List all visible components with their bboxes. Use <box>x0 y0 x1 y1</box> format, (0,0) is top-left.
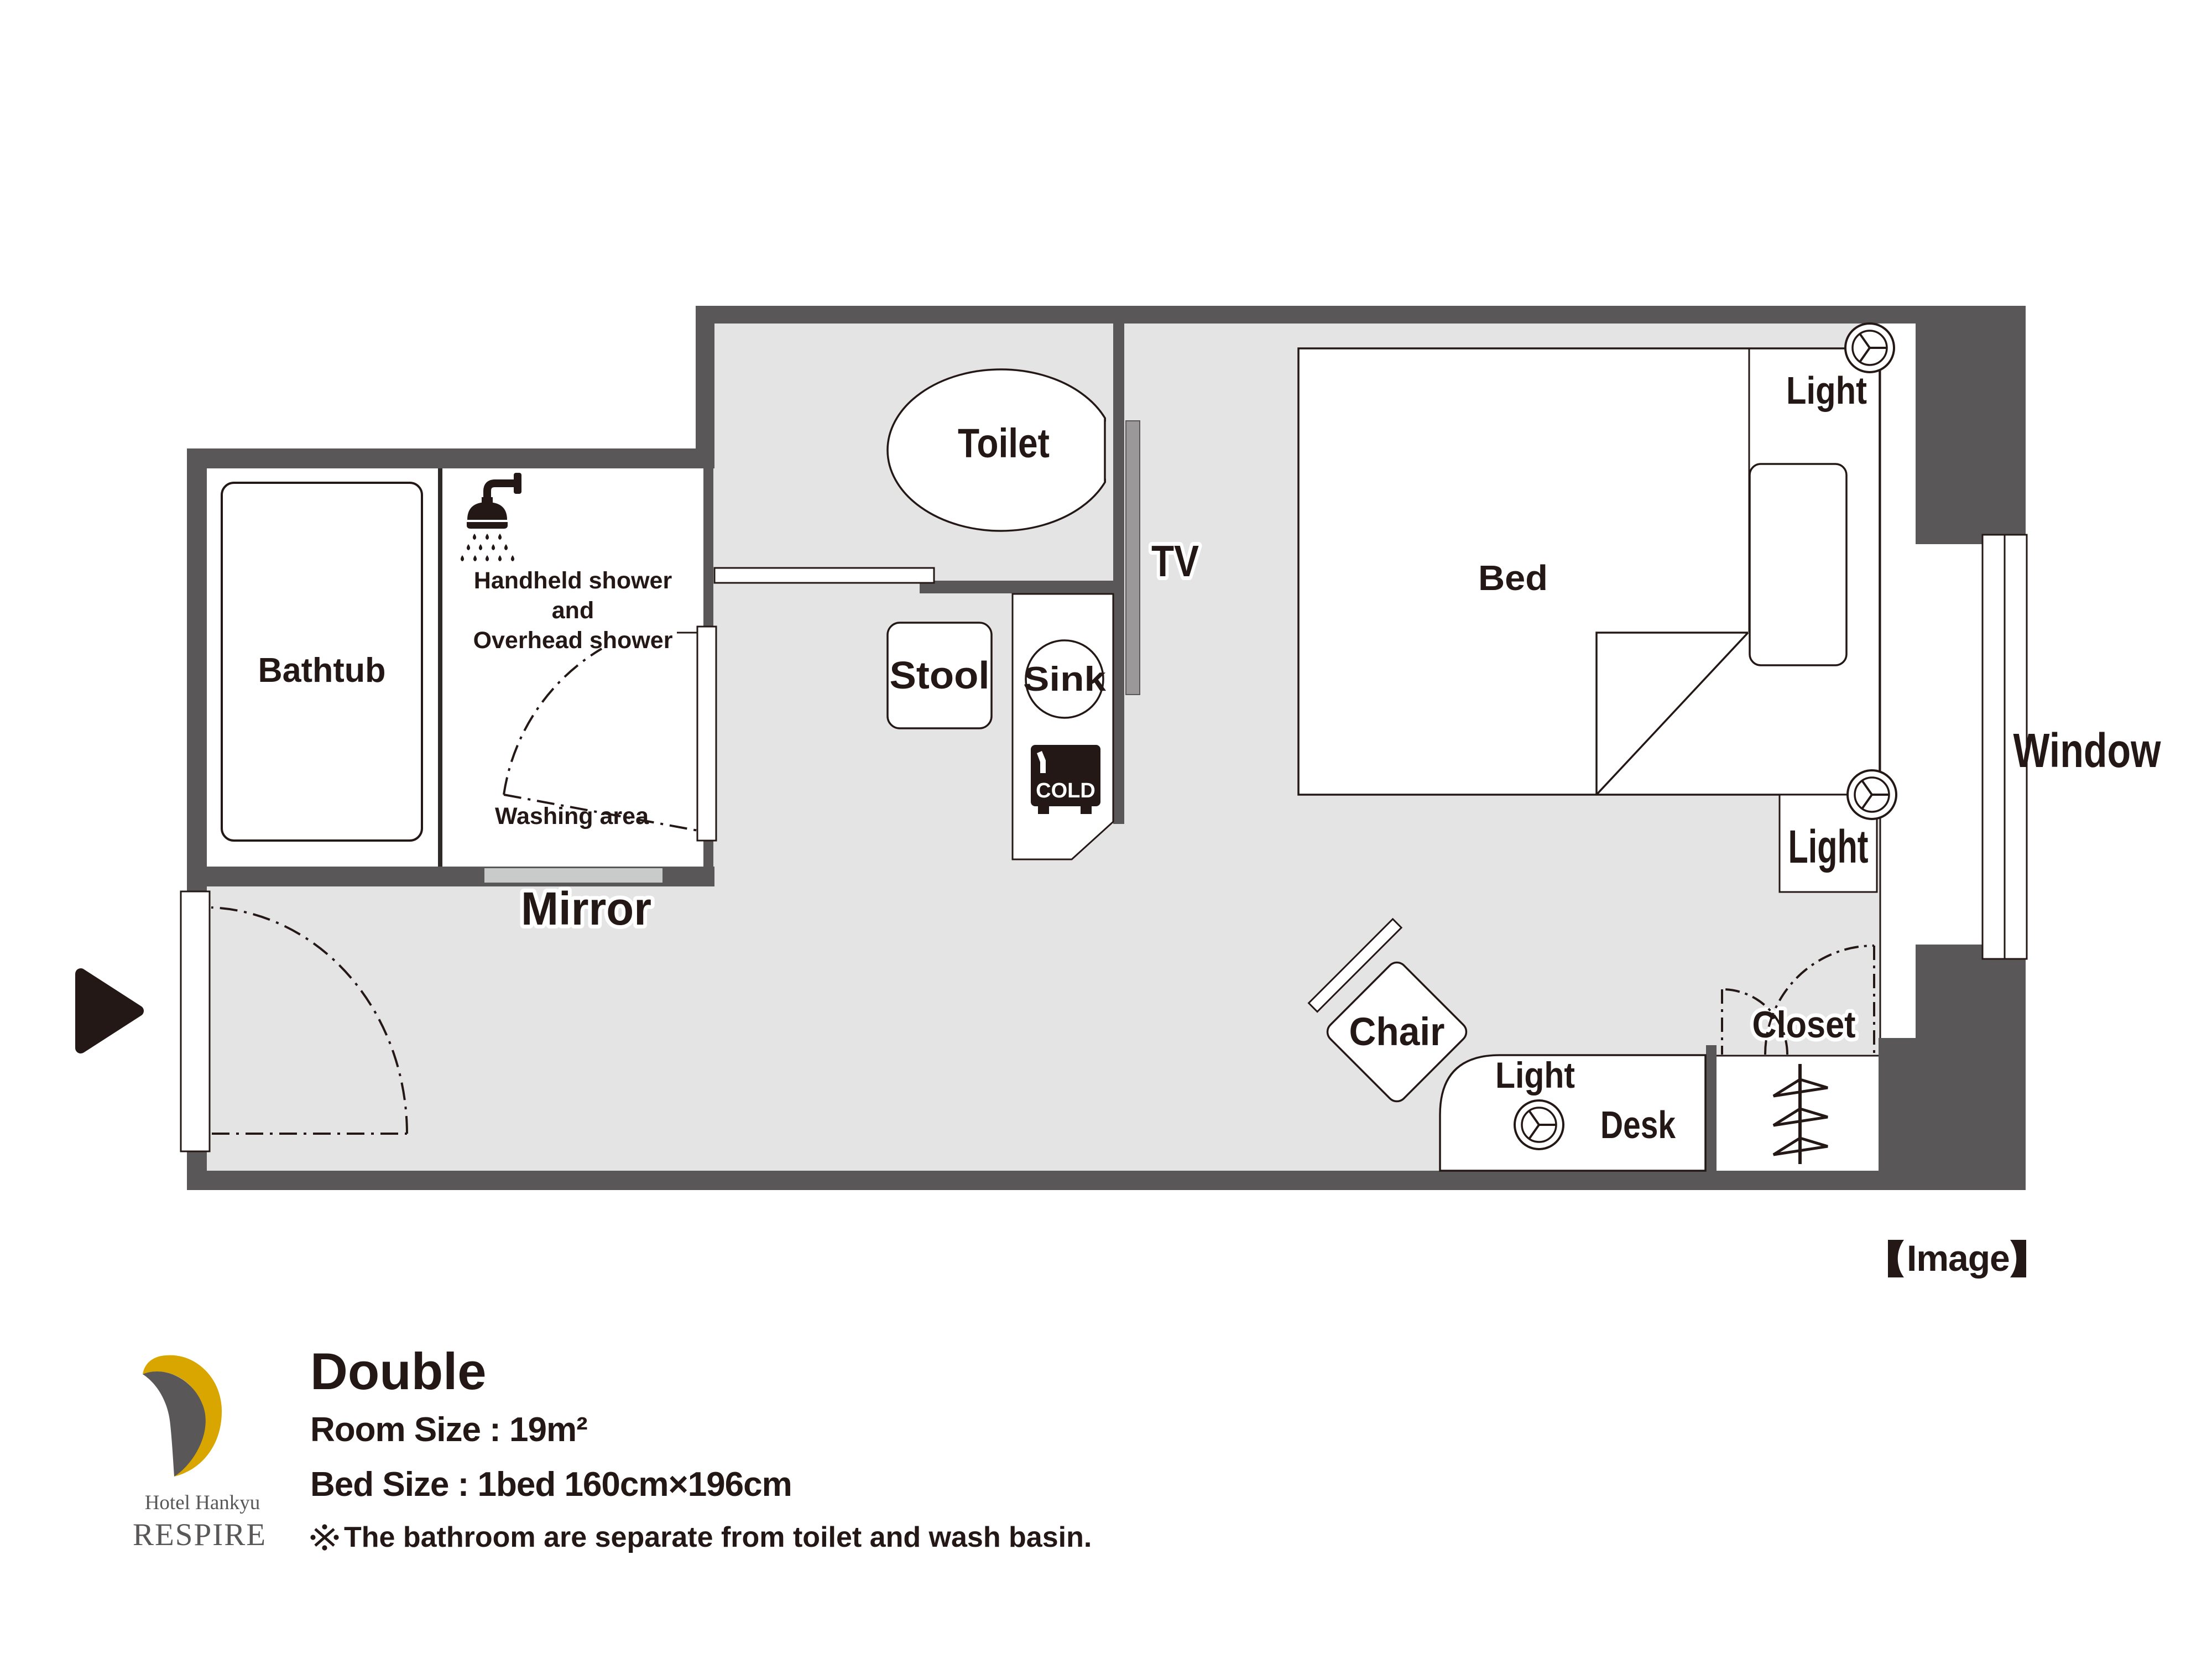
svg-text:Handheld shower: Handheld shower <box>474 567 672 594</box>
svg-text:Stool: Stool <box>890 654 990 697</box>
svg-text:Bed Size : 1bed 160cm×196cm: Bed Size : 1bed 160cm×196cm <box>310 1465 792 1504</box>
svg-text:Light: Light <box>1495 1055 1575 1095</box>
svg-text:Toilet: Toilet <box>958 420 1050 466</box>
svg-text:Sink: Sink <box>1023 660 1107 698</box>
svg-text:Light: Light <box>1788 821 1869 873</box>
svg-text:Hotel Hankyu: Hotel Hankyu <box>145 1491 260 1514</box>
svg-text:Room Size : 19m²: Room Size : 19m² <box>310 1411 587 1449</box>
svg-text:Desk: Desk <box>1600 1103 1676 1146</box>
svg-text:Overhead shower: Overhead shower <box>473 627 673 654</box>
svg-text:Closet: Closet <box>1752 1004 1856 1046</box>
svg-text:Mirror: Mirror <box>521 883 651 935</box>
svg-text:Bathtub: Bathtub <box>258 651 386 690</box>
svg-text:Light: Light <box>1786 369 1867 412</box>
svg-text:Bed: Bed <box>1478 558 1548 598</box>
svg-text:Image: Image <box>1907 1238 2010 1279</box>
svg-text:Double: Double <box>310 1342 487 1400</box>
svg-text:and: and <box>552 597 594 624</box>
svg-text:COLD: COLD <box>1036 779 1095 802</box>
svg-text:TV: TV <box>1151 536 1199 586</box>
svg-text:Chair: Chair <box>1349 1010 1445 1054</box>
svg-text:The bathroom are separate from: The bathroom are separate from toilet an… <box>344 1521 1092 1553</box>
svg-text:Window: Window <box>2013 724 2161 778</box>
svg-text:RESPIRE: RESPIRE <box>133 1517 267 1552</box>
